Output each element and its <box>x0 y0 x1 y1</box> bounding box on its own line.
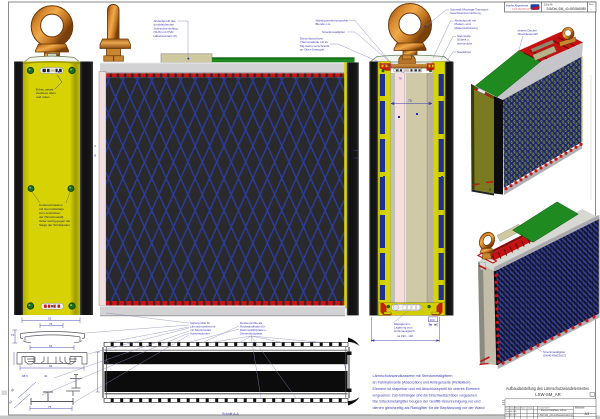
svg-text:Zementholzplatte: Zementholzplatte <box>240 332 263 336</box>
svg-text:Aussenwänden: Aussenwänden <box>190 332 210 336</box>
svg-text:76: 76 <box>399 77 403 81</box>
svg-text:15: 15 <box>11 333 15 337</box>
svg-text:54: 54 <box>49 344 53 348</box>
svg-text:Häkchenkranz-PL: Häkchenkranz-PL <box>154 34 178 38</box>
svg-text:75: 75 <box>48 405 52 409</box>
svg-text:Rev: Rev <box>506 408 509 410</box>
svg-text:Höhenausgleich: Höhenausgleich <box>394 329 415 333</box>
svg-text:an Ober-Untergurt: an Ober-Untergurt <box>300 48 325 52</box>
svg-text:dienen gleichzeitig als Rankgi: dienen gleichzeitig als Rankgitter für d… <box>373 405 485 410</box>
svg-text:interfer Abperlwnze: interfer Abperlwnze <box>506 4 529 8</box>
svg-text:LSW-SM_AR-Aufbaudarstellung: LSW-SM_AR-Aufbaudarstellung <box>539 414 574 417</box>
svg-text:wand abperlwnzen: wand abperlwnzen <box>512 8 531 11</box>
svg-text:Stege der Stirnbanden: Stege der Stirnbanden <box>39 223 70 227</box>
svg-text:Streckmetallgitter: Streckmetallgitter <box>322 30 345 34</box>
svg-text:Steckdose: Steckdose <box>457 50 471 54</box>
svg-text:ebensolche: ebensolche <box>457 41 473 45</box>
svg-text:Name: Name <box>515 408 520 410</box>
svg-text:-: - <box>591 393 592 397</box>
svg-text:75: 75 <box>408 99 412 103</box>
svg-text:A: A <box>94 144 96 148</box>
svg-text:an Fahrbahnseite (Absorption): an Fahrbahnseite (Absorption) und Anlieg… <box>373 379 472 384</box>
svg-text:203: 203 <box>430 318 435 322</box>
svg-text:LSW-SM_AR: LSW-SM_AR <box>535 392 560 397</box>
svg-text:98.5: 98.5 <box>22 374 28 378</box>
svg-text:Maßstab: Maßstab <box>575 407 585 410</box>
svg-text:Zchg Nr: Zchg Nr <box>544 3 553 6</box>
svg-text:Blatt: Blatt <box>589 3 594 6</box>
svg-text:84: 84 <box>49 364 53 368</box>
svg-text:53: 53 <box>48 317 52 321</box>
svg-text:Mattenschränung: Mattenschränung <box>455 26 479 30</box>
svg-text:Lärmschutzwandkassette mit Str: Lärmschutzwandkassette mit Streckmetallg… <box>373 373 453 378</box>
svg-text:Element ist stapelbar und mit: Element ist stapelbar und mit Abschlussp… <box>373 386 481 391</box>
svg-text:40: 40 <box>44 374 48 378</box>
svg-text:Urspr: Urspr <box>528 407 533 410</box>
svg-text:76: 76 <box>49 322 53 326</box>
svg-text:Die Streckmetallgitter beugen: Die Streckmetallgitter beugen der Graffi… <box>373 399 481 404</box>
svg-text:Fischer Matthias, Lohne: Fischer Matthias, Lohne <box>541 409 567 412</box>
svg-text:-: - <box>591 7 592 11</box>
svg-text:ca 190 - 140: ca 190 - 140 <box>397 334 413 338</box>
svg-text:A3: A3 <box>585 412 590 416</box>
svg-text:B: B <box>94 154 96 158</box>
svg-text:Schnitt A-A: Schnitt A-A <box>222 412 240 416</box>
svg-text:246/DeL/DM_40.45008d5985: 246/DeL/DM_40.45008d5985 <box>547 7 587 11</box>
svg-text:Norm: Norm <box>521 407 526 410</box>
svg-text:GW40-MW20x0.5: GW40-MW20x0.5 <box>543 354 566 358</box>
svg-text:und unten: und unten <box>36 95 50 99</box>
svg-text:Abschlussprofil: Abschlussprofil <box>518 32 539 36</box>
svg-text:vorgesehen. Zum Einhängen sind: vorgesehen. Zum Einhängen sind die Einsc… <box>373 392 478 397</box>
svg-text:Aufbaudarstellung des Lärmschu: Aufbaudarstellung des Lärmschutzwandelem… <box>506 386 589 391</box>
svg-text:Geschwenkvorrichtung: Geschwenkvorrichtung <box>450 11 481 15</box>
svg-text:Blende o.ä.: Blende o.ä. <box>316 22 331 26</box>
